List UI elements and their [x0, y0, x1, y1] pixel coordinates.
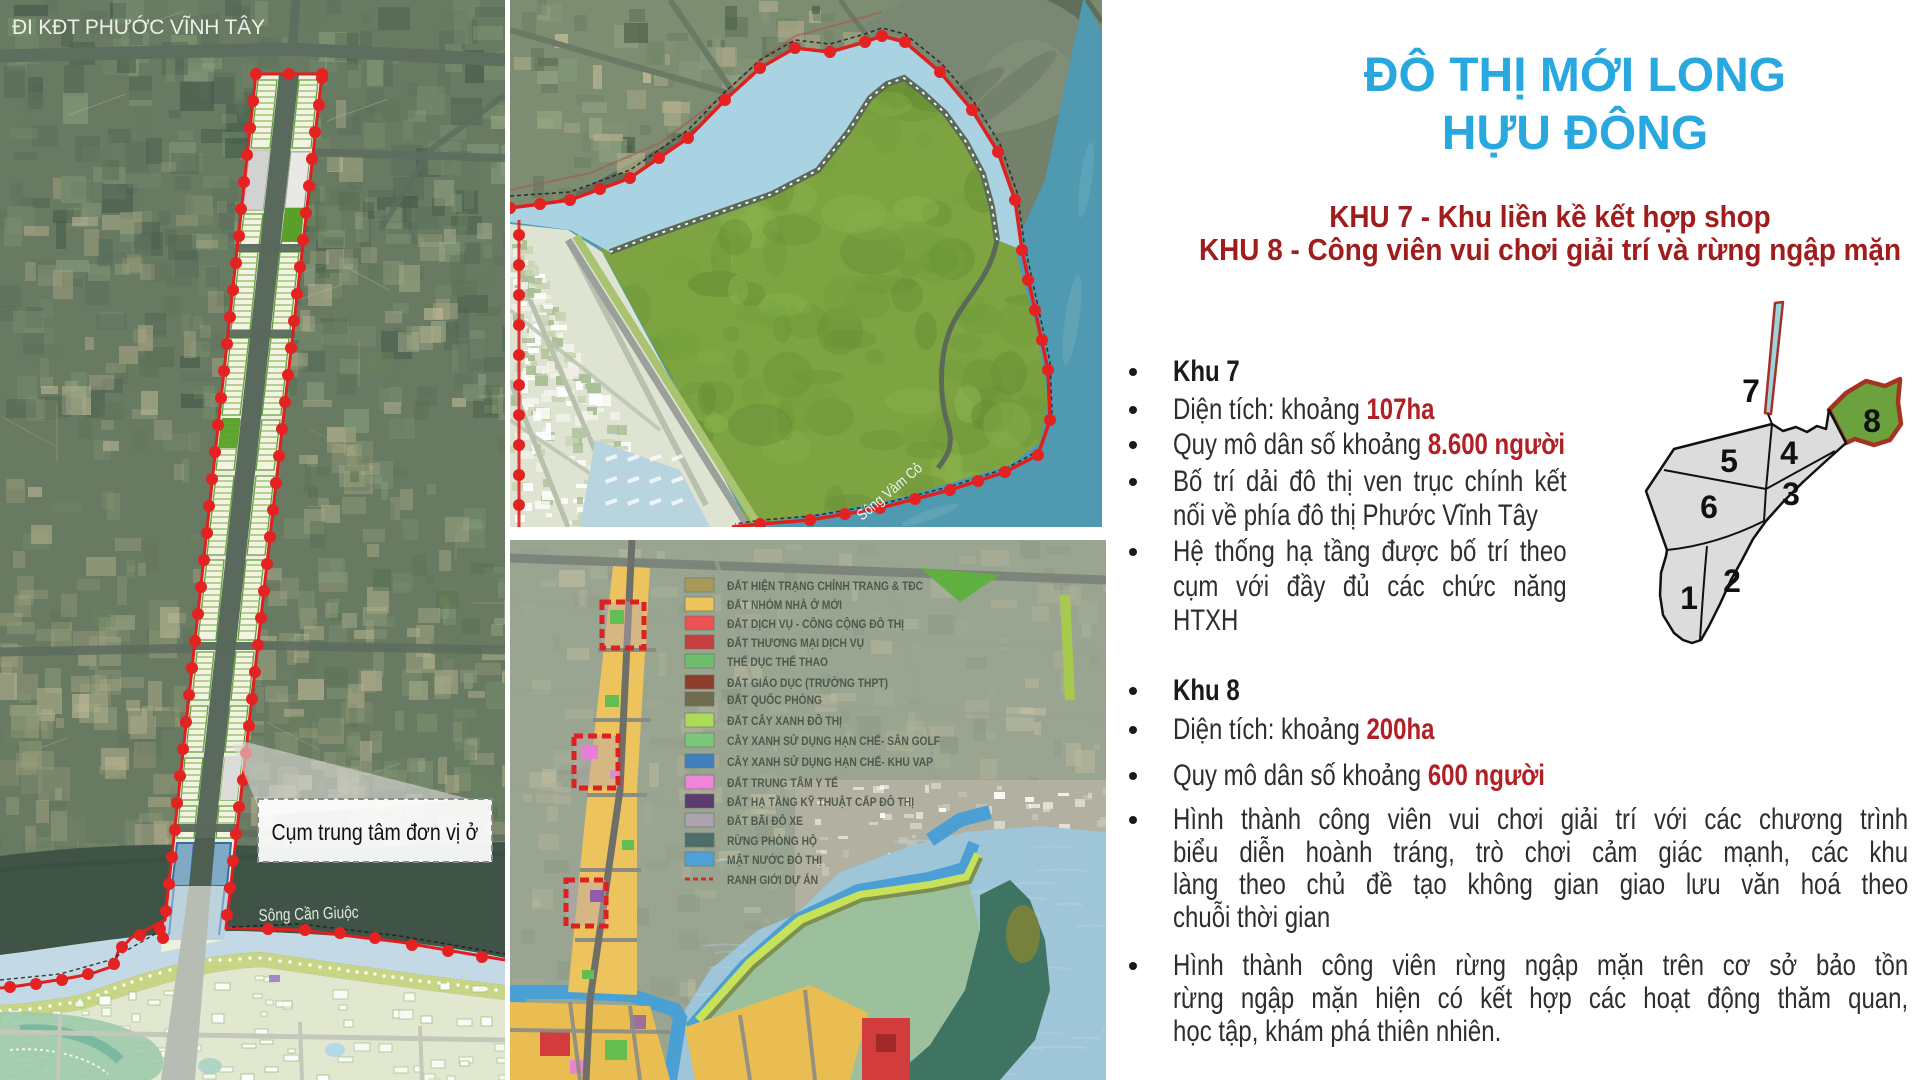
svg-text:CÂY XANH SỬ DỤNG HẠN CHẾ- KHU: CÂY XANH SỬ DỤNG HẠN CHẾ- KHU VAP	[727, 754, 933, 769]
svg-text:1: 1	[1680, 580, 1698, 616]
svg-text:ĐẤT THƯƠNG MẠI DỊCH VỤ: ĐẤT THƯƠNG MẠI DỊCH VỤ	[727, 635, 864, 650]
svg-text:Sông Cần Giuộc: Sông Cần Giuộc	[258, 903, 359, 925]
svg-text:ĐẤT CÂY XANH ĐÔ THỊ: ĐẤT CÂY XANH ĐÔ THỊ	[727, 713, 842, 728]
svg-text:8: 8	[1863, 403, 1881, 439]
svg-text:THỂ DỤC THỂ THAO: THỂ DỤC THỂ THAO	[727, 654, 828, 669]
svg-text:2: 2	[1723, 563, 1741, 599]
svg-text:RANH GIỚI DỰ ÁN: RANH GIỚI DỰ ÁN	[727, 872, 818, 887]
svg-text:5: 5	[1720, 443, 1738, 479]
svg-text:ĐẤT DỊCH VỤ - CÔNG CỘNG ĐÔ THỊ: ĐẤT DỊCH VỤ - CÔNG CỘNG ĐÔ THỊ	[727, 616, 904, 631]
svg-text:CÂY XANH SỬ DỤNG HẠN CHẾ- SÂN: CÂY XANH SỬ DỤNG HẠN CHẾ- SÂN GOLF	[727, 733, 940, 748]
svg-text:ĐẤT TRUNG TÂM Y TẾ: ĐẤT TRUNG TÂM Y TẾ	[727, 775, 838, 790]
svg-text:RỪNG PHÒNG HỘ: RỪNG PHÒNG HỘ	[727, 833, 817, 848]
svg-text:Cụm trung tâm đơn vị ở: Cụm trung tâm đơn vị ở	[272, 819, 479, 845]
svg-text:ĐẤT HIỆN TRẠNG CHỈNH TRANG & T: ĐẤT HIỆN TRẠNG CHỈNH TRANG & TĐC	[727, 578, 923, 593]
svg-text:ĐẤT GIÁO DỤC (TRƯỜNG THPT): ĐẤT GIÁO DỤC (TRƯỜNG THPT)	[727, 675, 888, 690]
svg-text:7: 7	[1742, 373, 1760, 409]
svg-text:3: 3	[1782, 476, 1800, 512]
svg-text:6: 6	[1700, 489, 1718, 525]
svg-text:4: 4	[1780, 435, 1798, 471]
svg-text:ĐẤT HẠ TẦNG KỸ THUẬT CẤP ĐÔ TH: ĐẤT HẠ TẦNG KỸ THUẬT CẤP ĐÔ THỊ	[727, 794, 914, 809]
svg-text:ĐẤT BÃI ĐỖ XE: ĐẤT BÃI ĐỖ XE	[727, 813, 803, 828]
svg-text:ĐẤT QUỐC PHÒNG: ĐẤT QUỐC PHÒNG	[727, 692, 822, 707]
svg-text:ĐẤT NHÓM NHÀ Ở MỚI: ĐẤT NHÓM NHÀ Ở MỚI	[727, 597, 842, 612]
svg-text:ĐI KĐT PHƯỚC VĨNH TÂY: ĐI KĐT PHƯỚC VĨNH TÂY	[12, 15, 265, 39]
svg-text:MẶT NƯỚC ĐÔ THỊ: MẶT NƯỚC ĐÔ THỊ	[727, 852, 822, 867]
